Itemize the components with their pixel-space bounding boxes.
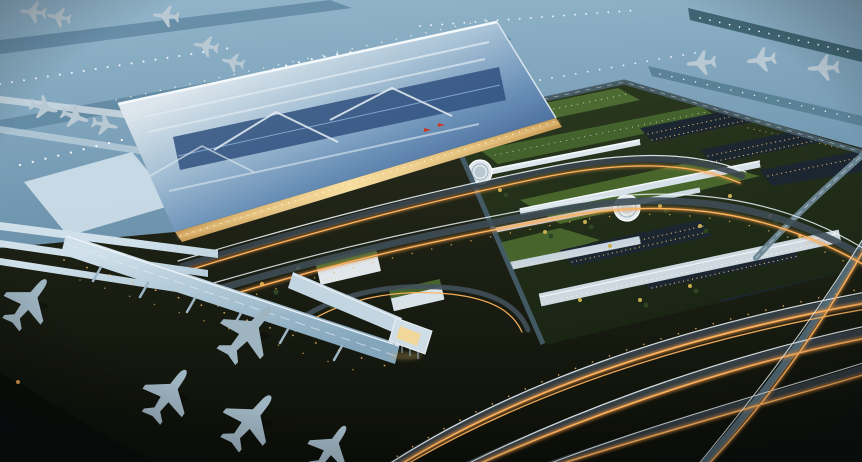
airport-aerial-rendering [0,0,862,462]
vignette [0,0,862,462]
airport-scene-svg [0,0,862,462]
